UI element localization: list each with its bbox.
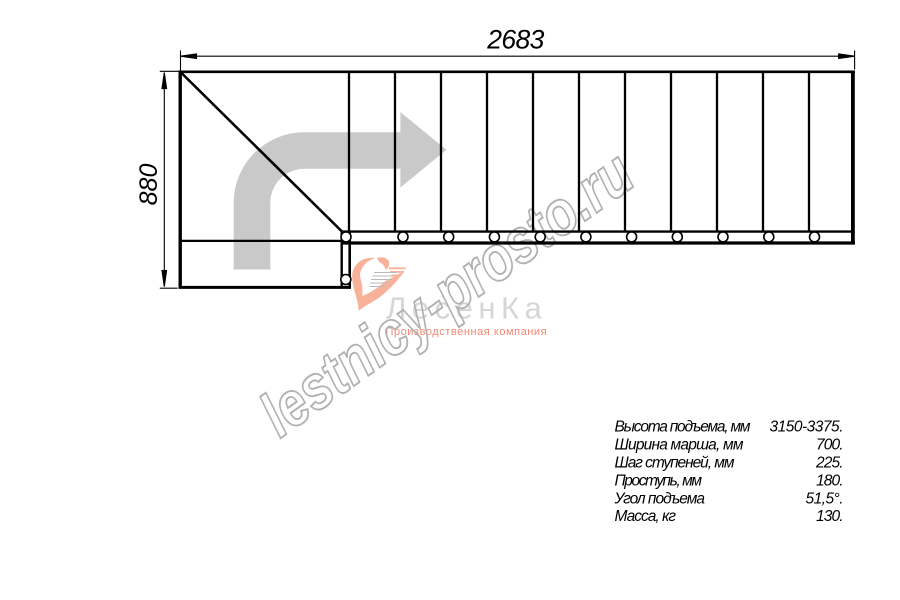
svg-text:3150-3375.: 3150-3375. [770,419,844,436]
svg-text:Высота подъема, мм: Высота подъема, мм [615,419,751,436]
svg-text:180.: 180. [816,472,844,489]
svg-text:130.: 130. [816,508,844,525]
svg-text:2683: 2683 [486,25,544,55]
svg-text:Ширина марша, мм: Ширина марша, мм [615,437,744,454]
svg-text:lestnicy-prosto.ru: lestnicy-prosto.ru [247,138,646,450]
svg-text:225.: 225. [815,455,844,472]
svg-text:880: 880 [135,164,163,206]
svg-text:Проступь, мм: Проступь, мм [615,472,703,489]
svg-text:Угол подъема: Угол подъема [614,490,706,507]
svg-text:Шаг ступеней, мм: Шаг ступеней, мм [615,455,735,472]
svg-text:51,5°.: 51,5°. [806,490,844,507]
svg-text:Масса, кг: Масса, кг [615,508,677,525]
svg-text:700.: 700. [816,437,844,454]
